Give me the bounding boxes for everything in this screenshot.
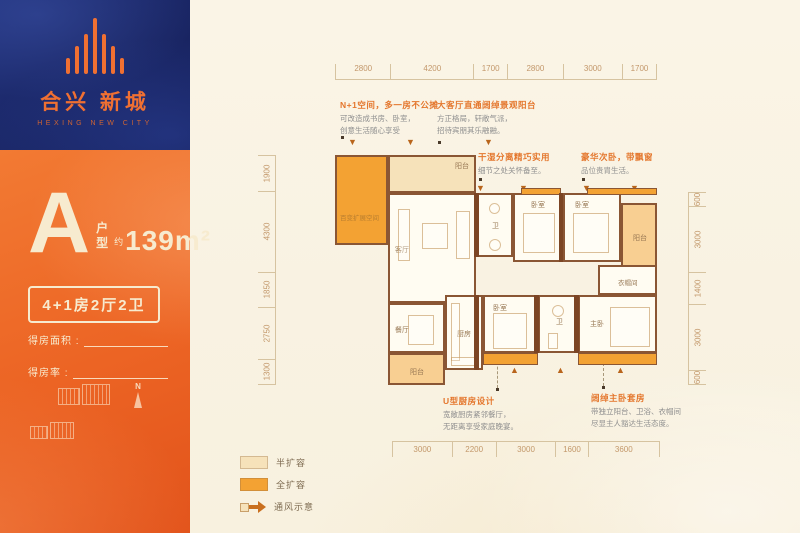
room-balcony-right: 阳台	[621, 203, 657, 271]
callout-body: 方正格局，轩敞气派， 招待宾朋其乐融融。	[437, 113, 547, 136]
room-balcony-top: 阳台	[388, 155, 476, 193]
brand-panel: 合兴 新城 HEXING NEW CITY	[0, 0, 190, 150]
building-icon	[50, 422, 74, 439]
legend-label: 通风示意	[274, 500, 314, 513]
dimension-line-right: 600 3000 1400 3000 600	[688, 192, 706, 385]
dimension-value: 2200	[452, 441, 496, 457]
dimension-line-left: 1900 4300 1850 2750 1300	[258, 155, 276, 385]
unit-area: 139m²	[125, 227, 211, 255]
wall-segment	[534, 295, 539, 353]
room-bath-2: 卫	[538, 295, 578, 353]
field-efficiency-blank	[73, 367, 168, 379]
legend-item-full-expand: 全扩容	[240, 478, 314, 491]
dimension-value: 4200	[390, 64, 473, 80]
callout-n-plus-1: N+1空间，多一房不公摊 可改造成书房、卧室， 创意生活随心享受	[340, 99, 440, 136]
dimension-value: 3000	[563, 64, 622, 80]
half-expand-swatch	[240, 456, 268, 469]
dimension-value: 2800	[335, 64, 390, 80]
room-master-bedroom: 主卧	[578, 295, 657, 353]
unit-letter: A	[28, 190, 90, 257]
dimension-value: 3600	[588, 441, 660, 457]
legend-item-half-expand: 半扩容	[240, 456, 314, 469]
dimension-value: 1850	[262, 281, 271, 299]
dimension-value: 3000	[392, 441, 452, 457]
dimension-value: 1700	[473, 64, 507, 80]
room-expand-space: 百变扩展空间	[335, 155, 388, 245]
building-icon	[82, 384, 110, 405]
unit-type-label: 户型	[96, 221, 110, 251]
field-efficiency-label: 得房率 :	[28, 364, 69, 379]
full-expand-swatch	[240, 478, 268, 491]
field-efficiency: 得房率 :	[28, 364, 168, 379]
legend: 半扩容 全扩容 通风示意	[240, 456, 314, 522]
room-living: 客厅	[388, 193, 476, 303]
dimension-value: 1300	[262, 363, 271, 381]
dimension-value: 2800	[507, 64, 562, 80]
dimension-value: 1600	[555, 441, 587, 457]
ventilation-arrow-icon	[240, 501, 266, 512]
unit-panel: A 户型 约 139m² 4+1房2厅2卫 得房面积 : 得房率 : N	[0, 150, 190, 533]
expansion-strip	[578, 353, 657, 365]
wall-segment	[474, 193, 479, 257]
bay-window-strip	[587, 188, 657, 195]
dimension-value: 1700	[622, 64, 657, 80]
field-floor-area-blank	[84, 335, 168, 347]
callout-living-balcony: 大客厅直通阔绰景观阳台 方正格局，轩敞气派， 招待宾朋其乐融融。	[437, 99, 547, 136]
callout-kitchen: U型厨房设计 宽敞厨房紧邻餐厅， 无距离享受家庭晚宴。	[443, 395, 553, 432]
legend-label: 全扩容	[276, 478, 306, 491]
vent-arrow-down-icon: ▼	[348, 138, 357, 147]
dimension-value: 3000	[693, 231, 702, 249]
wall-segment	[559, 193, 563, 262]
dimension-value: 1400	[693, 280, 702, 298]
vent-arrow-down-icon: ▼	[484, 138, 493, 147]
dimension-value: 2750	[262, 325, 271, 343]
callout-body: 带独立阳台、卫浴、衣帽间 尽显主人豁达生活态度。	[591, 406, 696, 429]
room-cloakroom: 衣帽间	[598, 265, 657, 295]
dimension-value: 3000	[496, 441, 556, 457]
callout-body: 宽敞厨房紧邻餐厅， 无距离享受家庭晚宴。	[443, 409, 553, 432]
callout-title: 大客厅直通阔绰景观阳台	[437, 99, 547, 111]
room-bedroom-1: 卧室	[513, 193, 563, 262]
room-balcony-bottom: 阳台	[388, 353, 445, 385]
bay-window-strip	[521, 188, 561, 195]
callout-title: N+1空间，多一房不公摊	[340, 99, 440, 111]
callout-master-suite: 阔绰主卧套房 带独立阳台、卫浴、衣帽间 尽显主人豁达生活态度。	[591, 392, 696, 429]
callout-title: 阔绰主卧套房	[591, 392, 696, 404]
floor-plan: 百变扩展空间 阳台 客厅 卫 卧室 卧室 阳台	[335, 155, 657, 387]
brand-name-en: HEXING NEW CITY	[0, 120, 190, 127]
callout-dot	[341, 136, 344, 139]
room-bedroom-3: 卧室	[483, 295, 538, 353]
building-bars-icon	[0, 14, 190, 74]
wall-segment	[574, 295, 579, 353]
dimension-value: 4300	[262, 223, 271, 241]
flyer-page: 合兴 新城 HEXING NEW CITY A 户型 约 139m² 4+1房2…	[0, 0, 800, 533]
dimension-value: 1900	[262, 165, 271, 183]
field-floor-area: 得房面积 :	[28, 332, 168, 347]
legend-item-ventilation: 通风示意	[240, 500, 314, 513]
dimension-line-top: 2800 4200 1700 2800 3000 1700	[335, 64, 657, 80]
dimension-line-bottom: 3000 2200 3000 1600 3600	[392, 441, 660, 457]
brand-name-cn: 合兴 新城	[0, 86, 190, 116]
dimension-value: 3000	[693, 328, 702, 346]
wall-segment	[474, 295, 479, 370]
vent-arrow-down-icon: ▼	[406, 138, 415, 147]
compass-north-label: N	[128, 382, 148, 391]
dimension-value: 600	[693, 371, 702, 384]
callout-dot	[438, 141, 441, 144]
compass-icon: N	[128, 382, 148, 408]
building-icon	[30, 426, 48, 439]
field-floor-area-label: 得房面积 :	[28, 332, 80, 347]
room-bath-1: 卫	[476, 193, 513, 257]
callout-title: U型厨房设计	[443, 395, 553, 407]
room-bedroom-2: 卧室	[563, 193, 621, 262]
building-icon	[58, 388, 80, 405]
callout-body: 可改造成书房、卧室， 创意生活随心享受	[340, 113, 440, 136]
unit-title: A 户型 约 139m²	[28, 190, 211, 257]
expansion-strip	[483, 353, 538, 365]
room-dining: 餐厅	[388, 303, 445, 353]
unit-approx-label: 约	[114, 235, 123, 248]
legend-label: 半扩容	[276, 456, 306, 469]
unit-spec-badge: 4+1房2厅2卫	[28, 286, 160, 323]
callout-dot	[496, 388, 499, 391]
dimension-value: 600	[693, 193, 702, 206]
